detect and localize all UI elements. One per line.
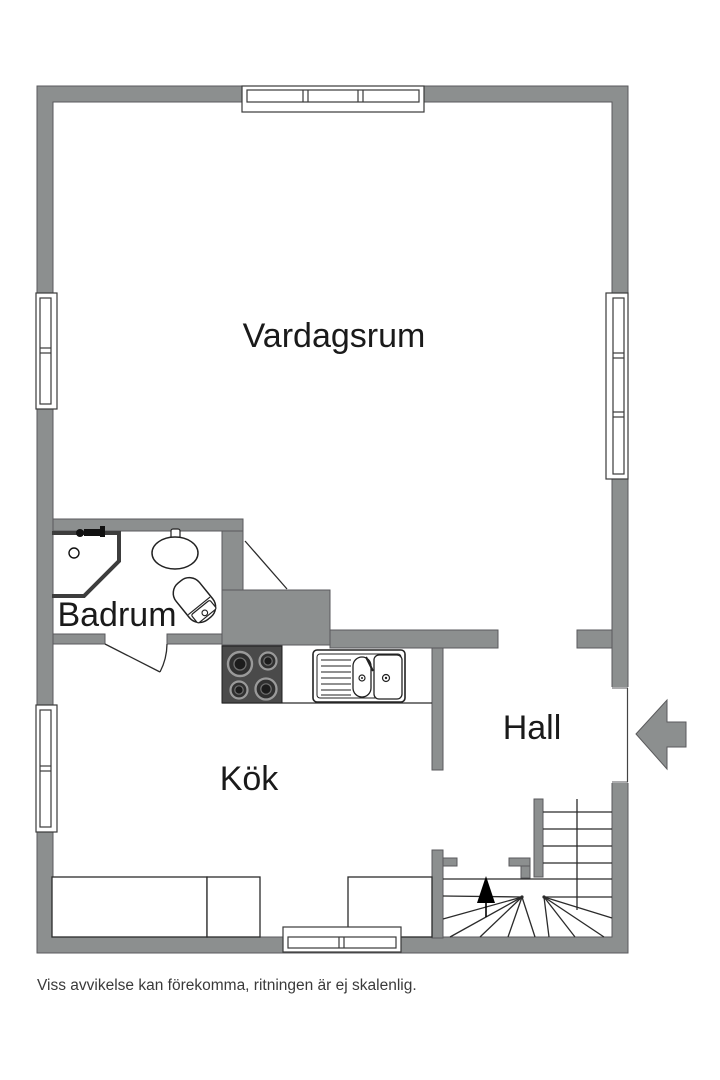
counter-bottom-left [52, 877, 207, 937]
window-right [606, 293, 628, 479]
bathroom-door-icon [105, 644, 167, 672]
kitchen-sink-icon [313, 650, 405, 702]
room-label-badrum: Badrum [57, 596, 176, 634]
window-bottom [283, 927, 401, 952]
stair-west-stub-foot [443, 858, 457, 866]
entrance-arrow-icon [636, 700, 686, 769]
bathroom-north-wall [53, 519, 243, 531]
room-label-hall: Hall [503, 709, 562, 747]
bathroom-south-wall-right [167, 634, 222, 644]
chimney-block [222, 590, 330, 645]
floor-plan: Vardagsrum Badrum Kök Hall Viss avvikels… [0, 0, 720, 1080]
hall-north-stub [577, 630, 612, 648]
kitchen-counter [222, 646, 432, 703]
shower-icon [52, 526, 119, 596]
entrance-opening [611, 687, 629, 783]
bathroom-east-wall [222, 531, 243, 590]
room-label-kok: Kök [220, 760, 280, 798]
stair-center-wall [534, 799, 543, 877]
stairs-up-arrow-icon [477, 876, 495, 917]
window-left-upper [36, 293, 57, 409]
stair-mid-stub-b [521, 866, 530, 878]
window-left-lower [36, 705, 57, 832]
counter-bottom-mid [207, 877, 260, 937]
washbasin-icon [152, 529, 198, 569]
stair-mid-stub-a [509, 858, 530, 866]
room-label-vardagsrum: Vardagsrum [243, 317, 426, 355]
bathroom-south-wall-left [53, 634, 105, 644]
kitchen-north-wall [330, 630, 498, 648]
kitchen-hall-divider [432, 648, 443, 770]
window-top [242, 86, 424, 112]
kitchen-door-leaf [245, 541, 287, 589]
stair-west-stub [432, 850, 443, 938]
disclaimer-text: Viss avvikelse kan förekomma, ritningen … [37, 977, 417, 994]
stove-icon [222, 646, 282, 703]
